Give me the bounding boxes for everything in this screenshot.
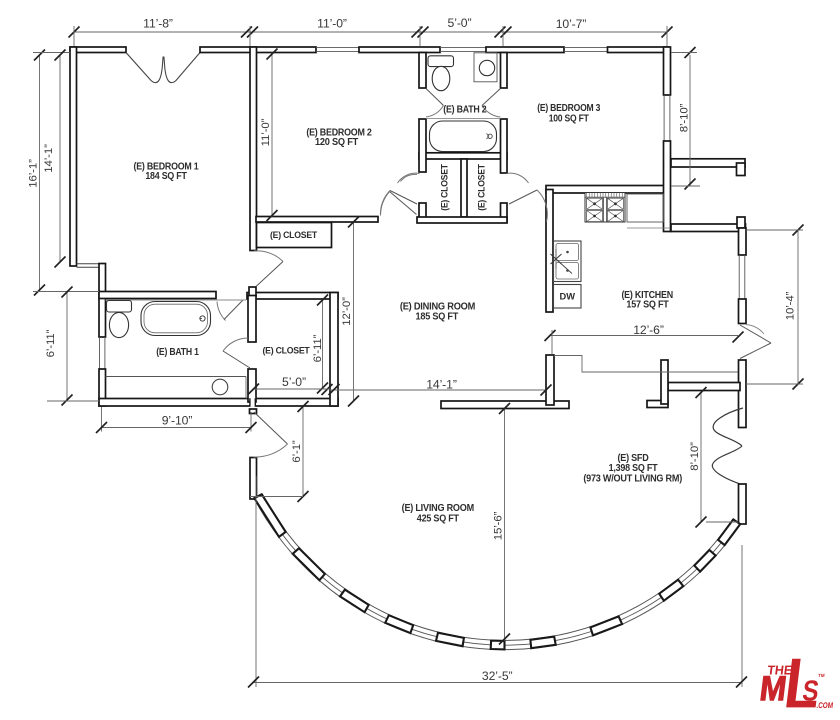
svg-text:DW: DW [560, 292, 576, 302]
svg-text:15’-6”: 15’-6” [493, 511, 505, 540]
svg-text:TM: TM [818, 673, 825, 678]
svg-text:12’-6”: 12’-6” [633, 323, 664, 337]
svg-text:10’-7”: 10’-7” [556, 17, 587, 31]
svg-text:11’-0”: 11’-0” [260, 118, 272, 146]
svg-text:(E) CLOSET: (E) CLOSET [440, 163, 450, 210]
svg-text:THE: THE [766, 663, 793, 678]
svg-text:(973 W/OUT LIVING RM): (973 W/OUT LIVING RM) [583, 474, 682, 485]
svg-text:16’-1”: 16’-1” [28, 159, 40, 188]
svg-text:6’-11”: 6’-11” [45, 329, 57, 357]
svg-text:10’-4”: 10’-4” [785, 291, 797, 320]
svg-text:(E) BEDROOM 3: (E) BEDROOM 3 [537, 103, 601, 114]
svg-text:(E) CLOSET: (E) CLOSET [477, 163, 487, 210]
svg-text:11’-8”: 11’-8” [143, 17, 173, 31]
svg-text:(E) CLOSET: (E) CLOSET [263, 346, 311, 356]
svg-text:(E) BATH 2: (E) BATH 2 [443, 105, 487, 116]
svg-text:5’-0”: 5’-0” [448, 16, 472, 30]
svg-text:9’-10”: 9’-10” [162, 414, 193, 428]
svg-text:100 SQ FT: 100 SQ FT [549, 113, 589, 124]
svg-text:14’-1”: 14’-1” [43, 144, 55, 173]
svg-text:14’-1”: 14’-1” [426, 378, 457, 392]
svg-text:(E) BATH 1: (E) BATH 1 [156, 347, 199, 358]
svg-text:8’-10”: 8’-10” [689, 442, 701, 471]
svg-text:12’-0”: 12’-0” [341, 297, 353, 326]
svg-text:425 SQ FT: 425 SQ FT [417, 513, 459, 524]
svg-text:5’-0”: 5’-0” [282, 375, 306, 389]
svg-text:6’-1”: 6’-1” [291, 440, 303, 463]
svg-text:157 SQ FT: 157 SQ FT [626, 300, 668, 311]
svg-text:32’-5”: 32’-5” [482, 669, 513, 683]
svg-text:.COM: .COM [816, 701, 834, 710]
svg-text:6’-11”: 6’-11” [312, 334, 324, 362]
svg-text:(E) CLOSET: (E) CLOSET [270, 230, 318, 240]
svg-text:184 SQ FT: 184 SQ FT [145, 171, 186, 182]
svg-text:120 SQ FT: 120 SQ FT [315, 137, 358, 148]
svg-text:11’-0”: 11’-0” [317, 17, 347, 31]
svg-text:185 SQ FT: 185 SQ FT [416, 312, 459, 323]
svg-text:8’-10”: 8’-10” [679, 103, 691, 132]
